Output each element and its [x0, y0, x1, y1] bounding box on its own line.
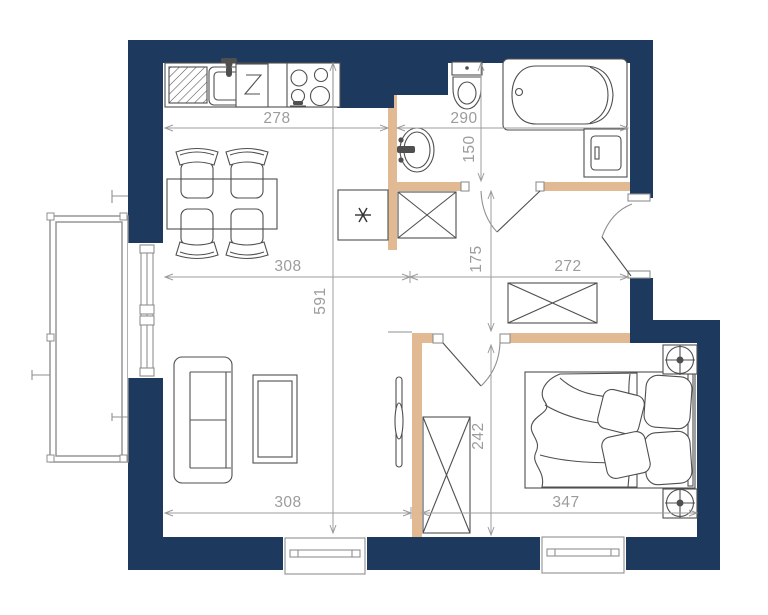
nightstand-with-lamp — [663, 345, 697, 375]
bed-icon — [525, 372, 695, 488]
dim-living-width-bottom: 308 — [274, 494, 301, 511]
dim-bedroom-depth: 242 — [470, 422, 487, 449]
living-room-window — [283, 535, 367, 579]
dining-table — [167, 179, 277, 229]
wall-left-upper — [128, 40, 163, 243]
balcony-post — [120, 213, 127, 220]
wall-tick-lower — [112, 413, 128, 421]
balcony-door-window — [128, 243, 163, 378]
fridge-icon — [338, 190, 388, 240]
dim-apartment-depth: 591 — [312, 287, 329, 314]
partition-bedroom-top-left — [412, 333, 433, 343]
washbasin-icon — [397, 128, 434, 172]
drainboard-icon — [169, 67, 207, 103]
dim-bedroom-width: 347 — [552, 494, 579, 511]
sofa-icon — [174, 357, 232, 483]
stove-icon — [287, 63, 333, 107]
dim-living-width-top: 308 — [274, 258, 301, 275]
wall-tick-upper — [112, 190, 128, 203]
balcony-tick — [32, 370, 50, 380]
washing-machine-icon — [584, 129, 627, 177]
wall-right-lower — [697, 343, 720, 570]
dishwasher-icon — [236, 64, 268, 107]
coffee-table-icon — [253, 375, 297, 463]
dim-kitchen-width: 278 — [263, 110, 290, 127]
wall-bulkhead-kitchen — [337, 63, 394, 108]
wall-right-upper — [630, 40, 653, 198]
toilet-icon — [452, 62, 482, 109]
balcony-post — [120, 455, 127, 462]
floor-plan: 278 290 150 308 272 591 175 242 — [0, 0, 768, 615]
living-room — [174, 357, 403, 483]
partition-bath-bottom-right — [540, 182, 630, 191]
partition-bedroom-left — [412, 343, 422, 537]
wall-step — [630, 320, 720, 343]
partition-bath-bottom-left — [397, 182, 468, 191]
hallway — [388, 182, 650, 386]
bedroom-door — [433, 334, 510, 386]
balcony-rail-outer — [50, 216, 128, 462]
balcony — [32, 190, 128, 462]
partition-bath-left — [388, 95, 397, 250]
dining-set — [167, 149, 277, 259]
wall-bulkhead-bath — [394, 63, 448, 95]
entry-door — [602, 194, 650, 278]
wall-bottom — [128, 537, 720, 570]
floor-plan-canvas: 278 290 150 308 272 591 175 242 — [0, 0, 768, 615]
bedroom-window — [540, 534, 626, 576]
dim-hall-depth: 175 — [468, 245, 485, 272]
balcony-post — [47, 213, 54, 220]
tv-icon — [395, 377, 403, 467]
bathroom-door — [461, 182, 544, 232]
wall-right-mid — [630, 278, 653, 323]
balcony-post — [47, 455, 54, 462]
wardrobe-icon — [508, 283, 597, 323]
dim-bathroom-depth: 150 — [461, 135, 478, 162]
partition-bedroom-top-right — [510, 333, 630, 343]
bathtub-icon — [503, 59, 627, 130]
balcony-post — [47, 334, 54, 341]
dim-hall-width: 272 — [554, 258, 581, 275]
wardrobe-icon — [398, 192, 456, 238]
dim-bathroom-width: 290 — [450, 110, 477, 127]
